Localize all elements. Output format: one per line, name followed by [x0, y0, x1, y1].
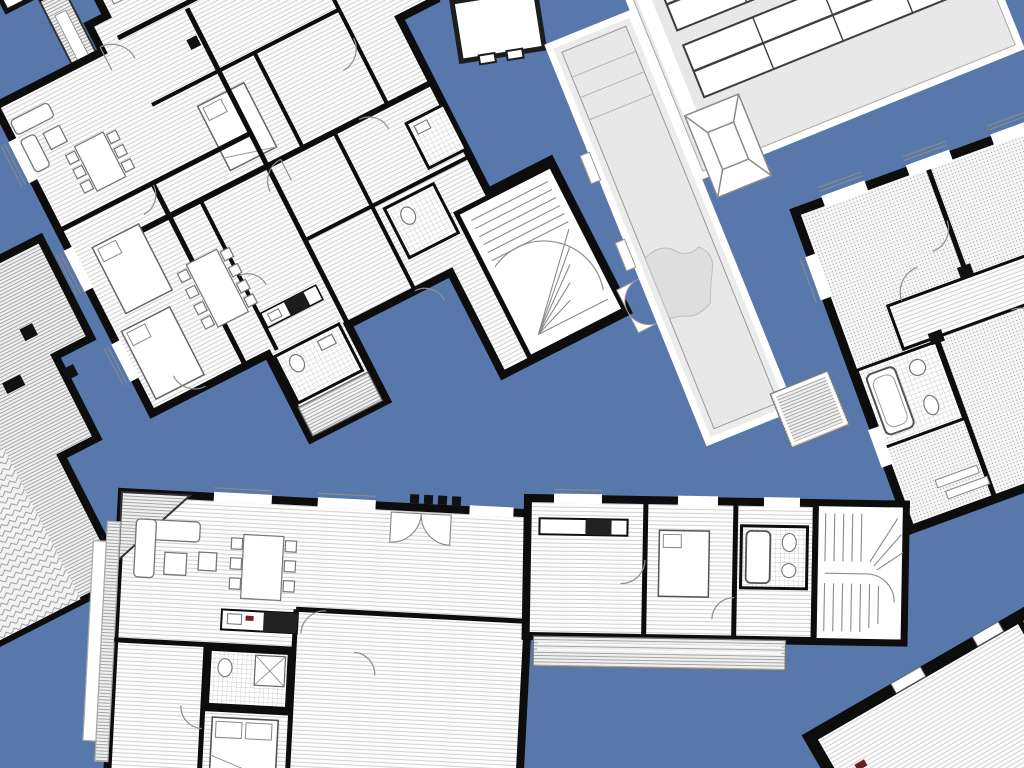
- balcony-rail: [533, 636, 785, 670]
- long-apartment-right-wing: [525, 489, 906, 673]
- door-tab: [479, 53, 496, 64]
- winder-staircase: [814, 503, 906, 643]
- door-tab: [506, 49, 523, 60]
- kitchen-counter: [221, 609, 298, 633]
- bed: [658, 530, 709, 597]
- floorplan-collage: [0, 0, 1024, 768]
- bedroom: [209, 717, 278, 768]
- bathroom-tiled: [207, 649, 290, 709]
- bathtub: [746, 531, 771, 583]
- bathroom-tiled: [740, 526, 807, 589]
- long-apartment-left-block: [81, 478, 534, 768]
- kitchen-counter: [539, 518, 627, 536]
